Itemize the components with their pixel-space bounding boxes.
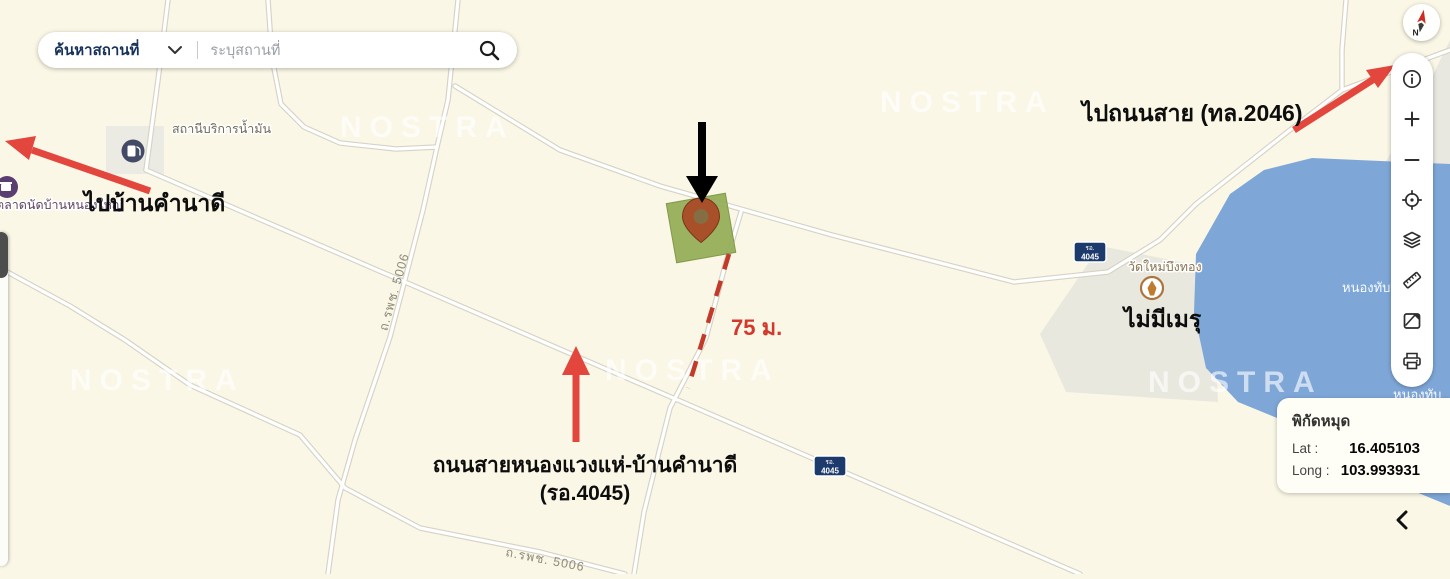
coordinates-panel: พิกัดหมุด Lat : 16.405103 Long : 103.993… [1277,398,1450,493]
locate-button[interactable] [1397,185,1427,215]
zoom-in-button[interactable] [1397,104,1427,134]
svg-text:4045: 4045 [1081,253,1099,262]
search-category-dropdown[interactable]: ค้นหาสถานที่ [54,38,139,62]
long-row: Long : 103.993931 [1292,462,1420,479]
layers-button[interactable] [1397,225,1427,255]
plus-icon [1401,108,1423,130]
road-shield-4045-north: รอ. 4045 [1074,242,1106,262]
locate-icon [1401,189,1423,211]
watermark-text: NOSTRA [70,364,245,397]
measure-button[interactable] [1397,265,1427,295]
long-value: 103.993931 [1341,462,1420,479]
print-button[interactable] [1397,346,1427,376]
lat-row: Lat : 16.405103 [1292,440,1420,457]
svg-text:รอ.: รอ. [825,459,834,466]
long-label: Long : [1292,463,1330,478]
lat-value: 16.405103 [1349,440,1420,457]
annotation-no-crematorium: ไม่มีเมรุ [1121,305,1202,334]
map-canvas[interactable]: NOSTRA NOSTRA NOSTRA NOSTRA NOSTRA ถ.รพช… [0,0,1450,574]
watermark-text: NOSTRA [340,111,515,144]
layers-icon [1401,229,1423,251]
watermark-text: NOSTRA [1148,366,1323,399]
annotation-road-name-line1: ถนนสายหนองแวงแห่-บ้านคำนาดี [433,453,737,477]
compass-needle-icon: N [1403,4,1440,41]
poi-label-temple: วัดใหม่บึงทอง [1128,260,1202,274]
map-toolbar [1391,53,1433,387]
market-icon [0,183,12,191]
lat-label: Lat : [1292,441,1318,456]
compass-north-label: N [1413,28,1419,38]
search-input[interactable]: ระบุสถานที่ [210,39,478,62]
annotation-to-ban-khamnadi: ไปบ้านคำนาดี [81,189,225,216]
search-icon[interactable] [478,39,501,62]
map-svg: NOSTRA NOSTRA NOSTRA NOSTRA NOSTRA ถ.รพช… [0,0,1450,574]
ruler-icon [1401,269,1423,291]
watermark-text: NOSTRA [880,86,1055,119]
printer-icon [1401,350,1423,372]
basemap-icon [1401,310,1423,332]
distance-label: 75 ม. [731,315,782,340]
minus-icon [1401,149,1423,171]
chevron-left-icon [1394,509,1410,531]
side-panel-edge [0,232,8,566]
collapse-panel-button[interactable] [1390,507,1414,533]
coordinates-title: พิกัดหมุด [1292,409,1420,433]
search-bar: ค้นหาสถานที่ ระบุสถานที่ [38,32,517,68]
annotation-to-highway-2046: ไปถนนสาย (ทล.2046) [1079,99,1303,126]
map-app: { "app": { "watermark": "NOSTRA" }, "col… [0,0,1450,574]
annotation-road-name-line2: (รอ.4045) [540,482,630,505]
compass-button[interactable]: N [1403,4,1440,41]
info-button[interactable] [1397,64,1427,94]
svg-text:4045: 4045 [821,467,839,476]
chevron-down-icon[interactable] [167,45,183,55]
svg-text:รอ.: รอ. [1085,245,1094,252]
info-icon [1401,68,1423,90]
water-label-1: หนองทับ [1342,280,1390,295]
zoom-out-button[interactable] [1397,145,1427,175]
basemap-button[interactable] [1397,306,1427,336]
road-shield-4045-south: รอ. 4045 [814,456,846,476]
poi-label-gas: สถานีบริการน้ำมัน [172,119,272,136]
search-divider [197,41,198,59]
side-panel-handle[interactable] [0,232,8,278]
